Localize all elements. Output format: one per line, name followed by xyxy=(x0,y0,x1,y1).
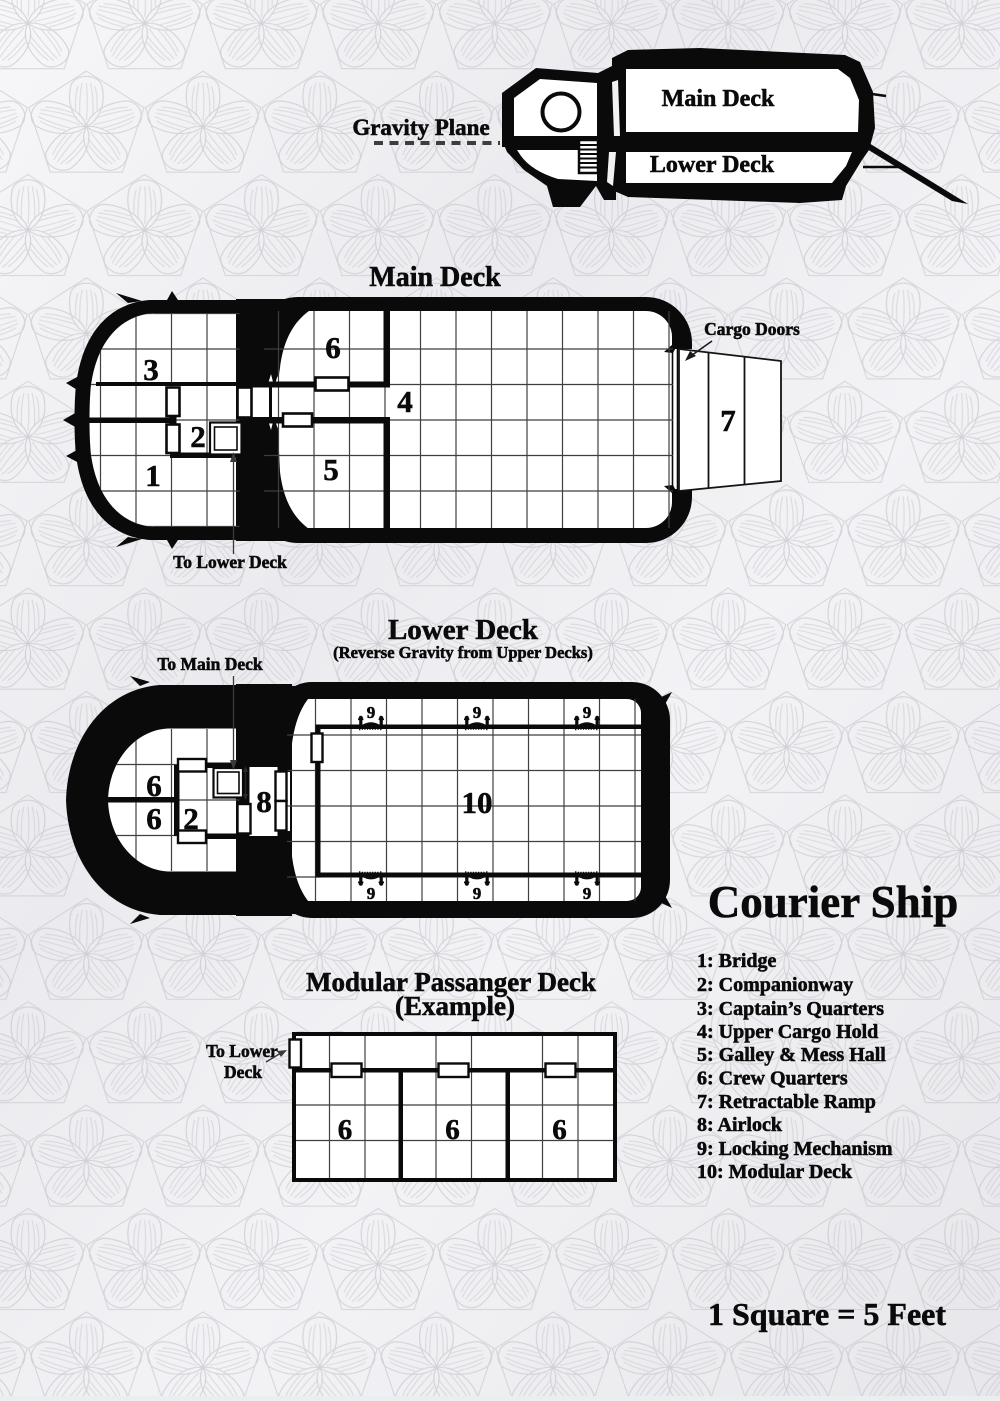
svg-text:9: 9 xyxy=(473,884,482,903)
svg-text:6: 6 xyxy=(552,1114,567,1146)
svg-text:5: 5 xyxy=(323,452,339,487)
svg-text:5: Galley & Mess Hall: 5: Galley & Mess Hall xyxy=(697,1044,886,1066)
svg-text:To Lower: To Lower xyxy=(206,1041,278,1061)
svg-text:2: 2 xyxy=(183,801,199,836)
svg-text:2: 2 xyxy=(190,419,206,454)
svg-text:3: 3 xyxy=(143,352,159,387)
svg-text:To Lower Deck: To Lower Deck xyxy=(173,552,287,572)
svg-text:Deck: Deck xyxy=(224,1062,262,1082)
svg-text:9: 9 xyxy=(583,884,592,903)
svg-text:4: Upper Cargo Hold: 4: Upper Cargo Hold xyxy=(697,1021,878,1043)
svg-text:(Example): (Example) xyxy=(395,991,515,1021)
svg-text:9: 9 xyxy=(367,703,376,722)
svg-text:10: Modular Deck: 10: Modular Deck xyxy=(697,1161,853,1183)
svg-text:Courier Ship: Courier Ship xyxy=(708,877,958,927)
svg-text:To Main Deck: To Main Deck xyxy=(157,654,263,674)
svg-text:2: Companionway: 2: Companionway xyxy=(697,974,853,996)
svg-text:1 Square = 5 Feet: 1 Square = 5 Feet xyxy=(708,1296,946,1332)
svg-text:6: 6 xyxy=(445,1114,460,1146)
svg-text:Cargo Doors: Cargo Doors xyxy=(704,319,800,339)
svg-text:Main Deck: Main Deck xyxy=(662,86,775,112)
svg-text:7: 7 xyxy=(720,403,736,438)
svg-text:3: Captain’s Quarters: 3: Captain’s Quarters xyxy=(697,998,884,1020)
svg-text:6: Crew Quarters: 6: Crew Quarters xyxy=(697,1068,848,1090)
svg-text:6: 6 xyxy=(146,801,162,836)
svg-text:9: 9 xyxy=(367,884,376,903)
svg-text:1: Bridge: 1: Bridge xyxy=(697,950,777,972)
svg-text:9: 9 xyxy=(583,703,592,722)
svg-text:9: 9 xyxy=(473,703,482,722)
svg-text:7: Retractable Ramp: 7: Retractable Ramp xyxy=(697,1091,876,1113)
svg-text:8: Airlock: 8: Airlock xyxy=(697,1114,783,1136)
svg-text:(Reverse Gravity from Upper De: (Reverse Gravity from Upper Decks) xyxy=(333,643,593,662)
svg-text:10: 10 xyxy=(462,785,493,820)
svg-text:4: 4 xyxy=(397,384,413,419)
svg-text:Main Deck: Main Deck xyxy=(369,262,501,293)
svg-text:Gravity Plane: Gravity Plane xyxy=(352,115,489,140)
svg-text:Lower Deck: Lower Deck xyxy=(388,614,539,646)
svg-text:6: 6 xyxy=(338,1114,353,1146)
svg-text:9: Locking Mechanism: 9: Locking Mechanism xyxy=(697,1138,893,1160)
svg-text:Lower Deck: Lower Deck xyxy=(650,152,775,178)
svg-text:6: 6 xyxy=(325,330,341,365)
svg-text:8: 8 xyxy=(256,784,272,819)
svg-text:1: 1 xyxy=(145,458,161,493)
svg-text:6: 6 xyxy=(146,768,162,803)
